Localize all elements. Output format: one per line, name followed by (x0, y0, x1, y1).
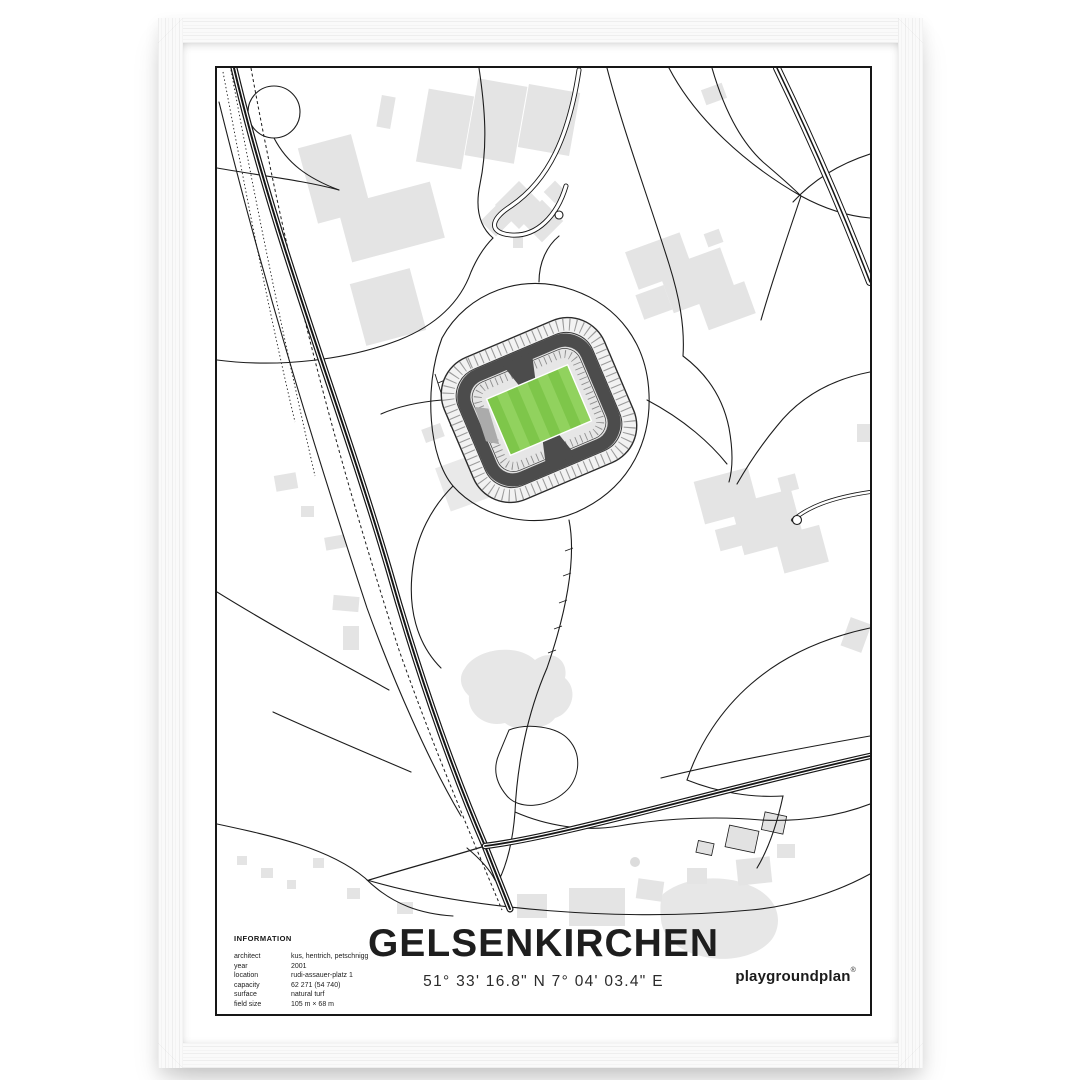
frame-miter (158, 1043, 183, 1068)
frame-miter (898, 18, 923, 43)
frame-edge-left (158, 18, 183, 1068)
frame-edge-right (898, 18, 923, 1068)
frame-edge-top (158, 18, 923, 43)
scene: INFORMATION architectkus, hentrich, pets… (0, 0, 1080, 1080)
poster-title: GELSENKIRCHEN (217, 923, 870, 965)
turning-circle (555, 211, 563, 219)
poster-printed-area: INFORMATION architectkus, hentrich, pets… (215, 66, 872, 1016)
info-row: field size105 m × 68 m (234, 1000, 414, 1010)
brand-mark: ® (851, 967, 856, 974)
brand-logo: playgroundplan® (735, 967, 856, 985)
stadium-map (217, 68, 870, 1014)
poster-paper: INFORMATION architectkus, hentrich, pets… (183, 43, 898, 1043)
poster-frame: INFORMATION architectkus, hentrich, pets… (158, 18, 923, 1068)
frame-miter (158, 18, 183, 43)
roundabout (793, 516, 802, 525)
info-row: surfacenatural turf (234, 990, 414, 1000)
map-outlined-field (496, 726, 578, 805)
frame-miter (898, 1043, 923, 1068)
frame-edge-bottom (158, 1043, 923, 1068)
brand-name: playgroundplan (735, 968, 850, 985)
